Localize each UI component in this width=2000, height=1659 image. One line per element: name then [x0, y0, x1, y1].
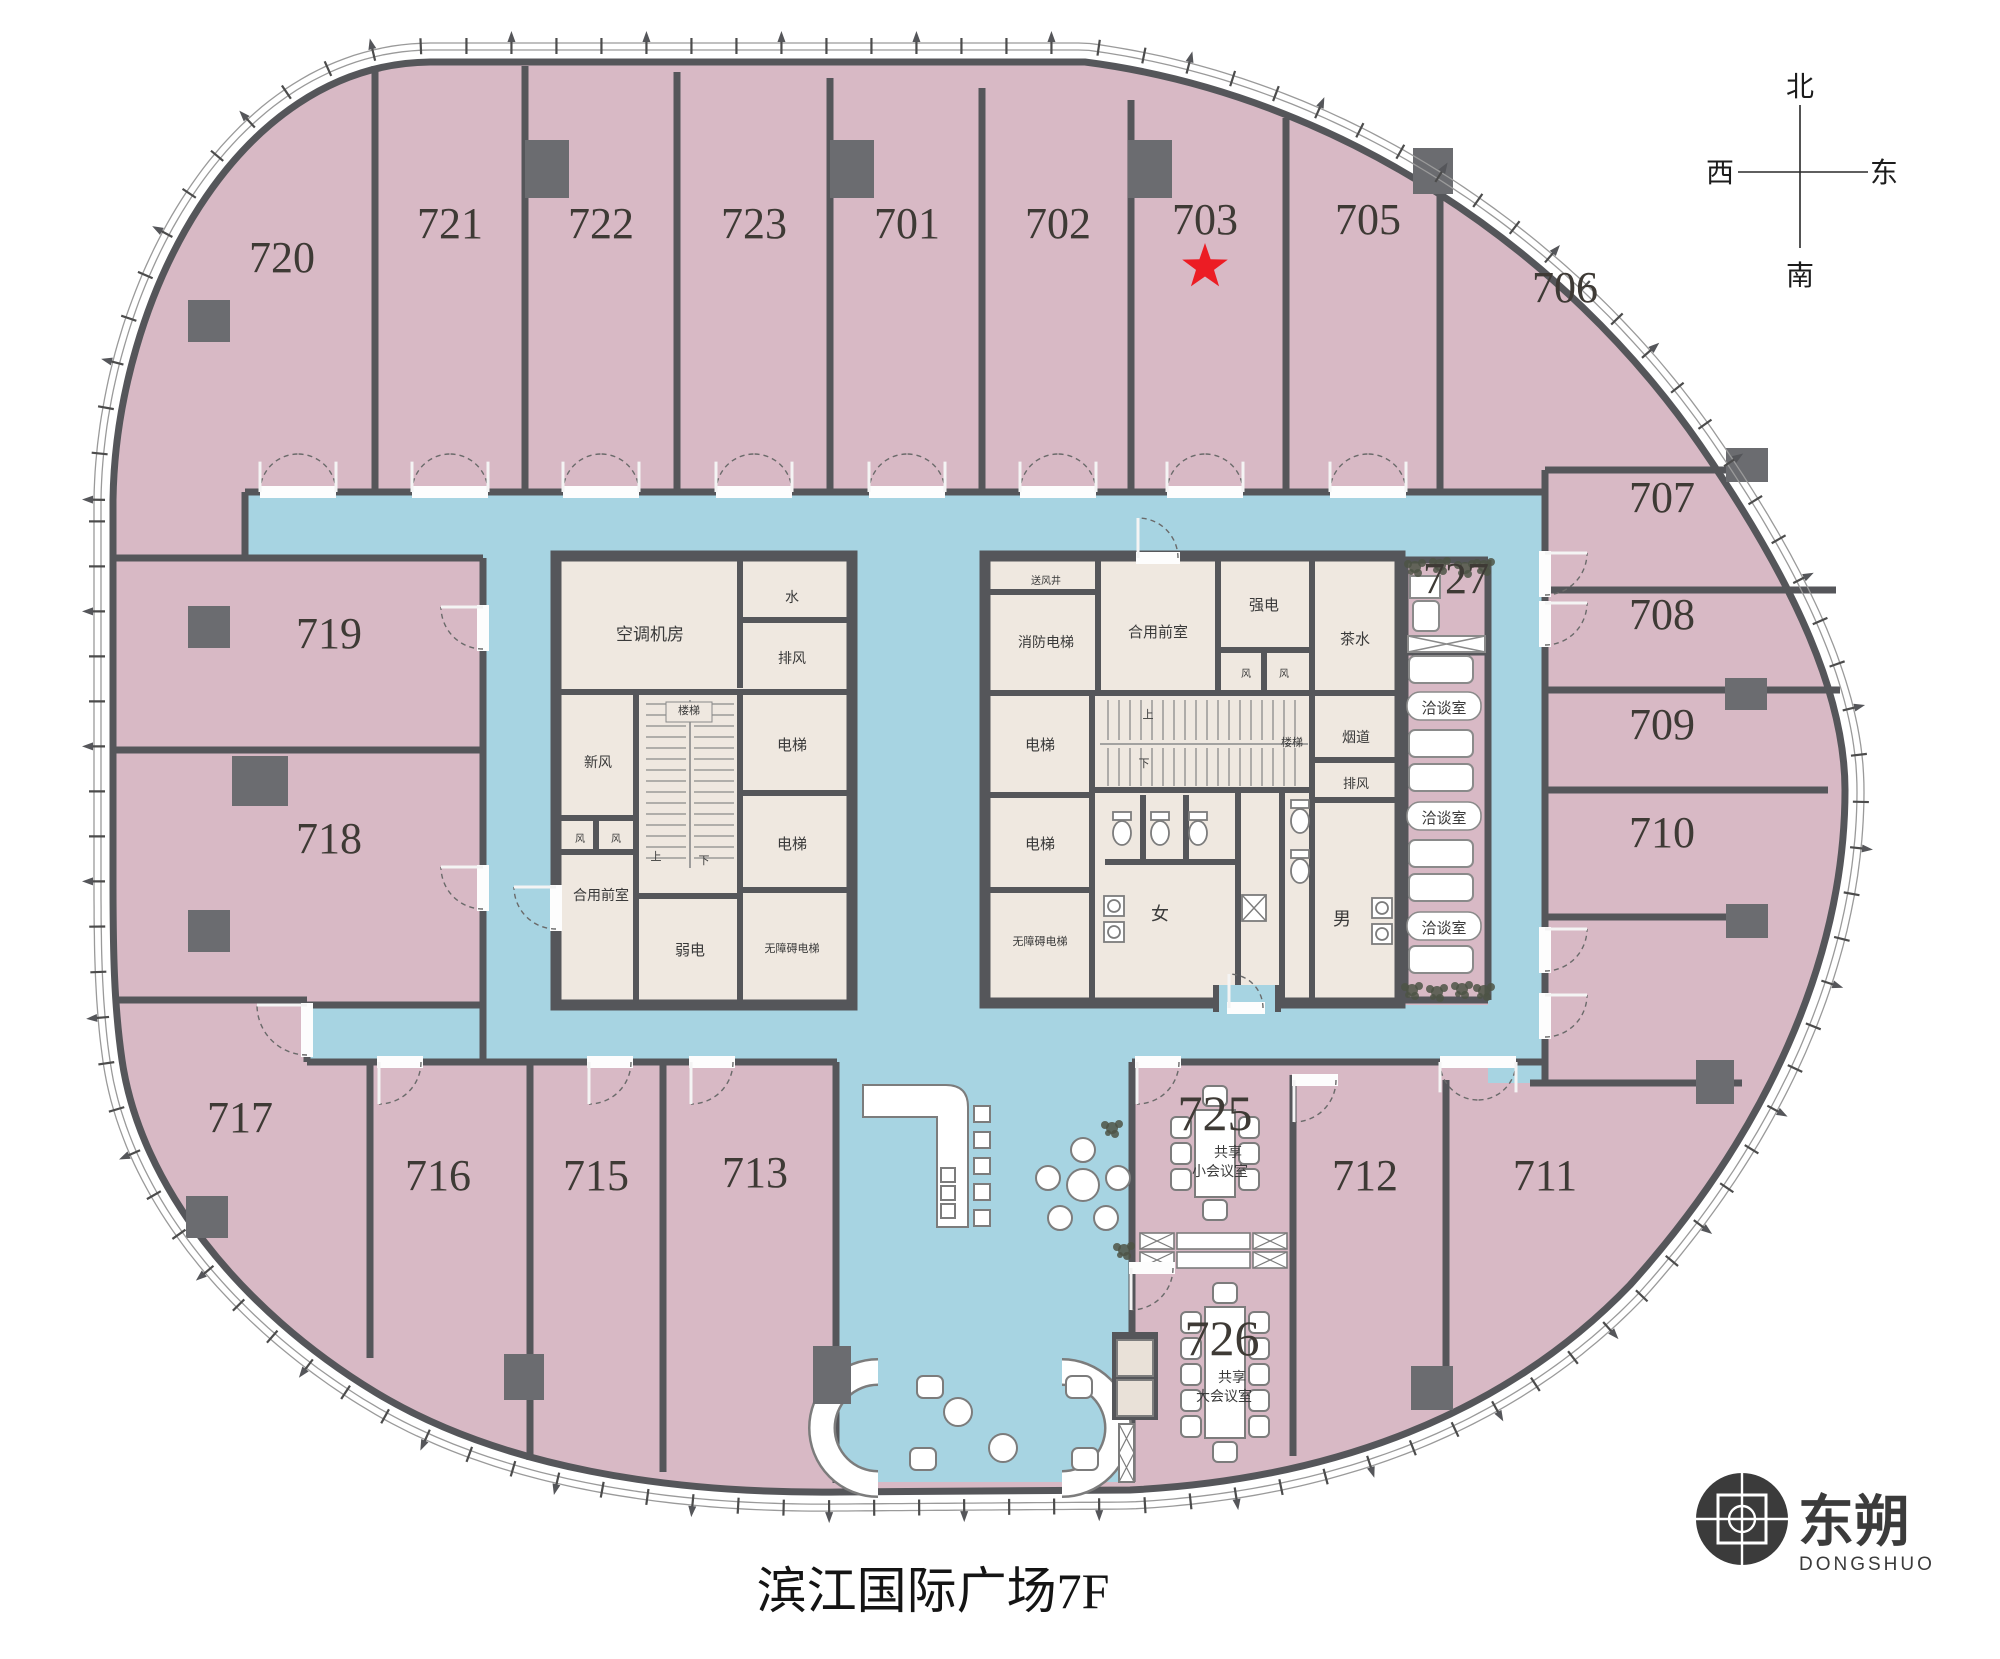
- core-label-新风: 新风: [584, 755, 612, 771]
- facade-mullion: [507, 31, 515, 42]
- core-label-烟道: 烟道: [1342, 730, 1370, 746]
- sink-bowl: [1108, 900, 1120, 912]
- plant: [1473, 984, 1481, 992]
- door-gap: [1539, 551, 1551, 597]
- facade-tick: [90, 972, 106, 973]
- structural-column: [232, 756, 288, 806]
- facade-mullion: [912, 31, 920, 42]
- facade-tick: [1145, 1497, 1146, 1513]
- core-label-下: 下: [699, 854, 710, 867]
- room-label-726: 726: [1185, 1310, 1260, 1366]
- column-hatched: [1119, 1424, 1134, 1482]
- bookshelf: [1177, 1233, 1250, 1249]
- core-label-强电: 强电: [1249, 596, 1279, 614]
- plant: [1117, 1252, 1123, 1258]
- booth-sofa: [1409, 730, 1473, 757]
- door-gap: [377, 1056, 423, 1068]
- facade-tick: [109, 1107, 124, 1112]
- room-label-723: 723: [721, 199, 787, 248]
- facade-mullion: [368, 38, 376, 50]
- plant: [1113, 1243, 1121, 1251]
- meeting-chair: [1171, 1169, 1191, 1190]
- corridor-bottom-band: [307, 1005, 1545, 1062]
- plant: [1426, 985, 1434, 993]
- meeting-chair: [1181, 1416, 1201, 1437]
- structural-column: [813, 1346, 851, 1404]
- door-gap: [260, 486, 336, 498]
- plant: [1414, 569, 1422, 577]
- core-label-排风: 排风: [1343, 777, 1369, 792]
- facade-mullion: [1862, 844, 1873, 852]
- plant: [1408, 569, 1414, 575]
- room-label-716: 716: [405, 1151, 471, 1200]
- toilet: [1189, 821, 1207, 845]
- plant: [1430, 994, 1436, 1000]
- room-label-727: 727: [1423, 554, 1489, 603]
- facade-mullion: [82, 607, 93, 615]
- room-label-713: 713: [722, 1148, 788, 1197]
- facade-tick: [1279, 1479, 1282, 1495]
- facade-tick: [646, 1489, 648, 1505]
- structural-column: [188, 910, 230, 952]
- room-label-711: 711: [1513, 1151, 1577, 1200]
- door-gap: [477, 865, 489, 911]
- lounge-table: [944, 1398, 972, 1426]
- facade-mullion: [553, 1483, 561, 1495]
- lobby-area: [837, 1062, 1132, 1482]
- structural-column: [1411, 1366, 1453, 1410]
- toilet-tank: [1189, 812, 1207, 820]
- compass-east: 东: [1870, 157, 1898, 189]
- core-label-上: 上: [651, 850, 662, 863]
- corridor-top-band: [245, 492, 1545, 558]
- core-label-电梯: 电梯: [1025, 835, 1055, 853]
- facade-tick: [1142, 48, 1145, 64]
- room-label-708: 708: [1629, 590, 1695, 639]
- facade-tick: [98, 406, 114, 409]
- facade-mullion: [82, 742, 93, 750]
- facade-tick: [601, 1482, 604, 1498]
- door-gap: [1020, 486, 1096, 498]
- corridor-center-branch: [852, 558, 985, 1005]
- booth-label: 洽谈室: [1421, 809, 1466, 827]
- reception-stool: [974, 1132, 990, 1148]
- plant: [1465, 981, 1473, 989]
- door-gap: [563, 486, 639, 498]
- toilet: [1291, 809, 1309, 833]
- plant: [1101, 1121, 1109, 1129]
- cafe-chair: [1048, 1206, 1072, 1230]
- plant: [1111, 1130, 1119, 1138]
- door-gap: [1330, 486, 1406, 498]
- booth-label: 洽谈室: [1421, 919, 1466, 937]
- door-gap: [1167, 486, 1243, 498]
- lounge-chair: [917, 1376, 943, 1398]
- core-label-电梯: 电梯: [777, 835, 807, 853]
- corridor-right-branch: [1488, 492, 1545, 1083]
- core-label-弱电: 弱电: [675, 941, 705, 959]
- facade-tick: [98, 1062, 114, 1064]
- plant: [1455, 991, 1461, 997]
- core-label-男: 男: [1333, 909, 1351, 930]
- logo-cn-text: 东朔: [1798, 1490, 1910, 1555]
- core-label-风: 风: [1279, 668, 1289, 680]
- plant: [1115, 1120, 1123, 1128]
- logo-crosshair: [1684, 1461, 1800, 1577]
- door-gap: [1227, 1002, 1265, 1014]
- meeting-chair: [1249, 1364, 1269, 1385]
- door-gap: [1135, 1056, 1181, 1068]
- room-label-707: 707: [1629, 473, 1695, 522]
- core-label-水: 水: [785, 590, 799, 606]
- facade-tick: [1097, 40, 1099, 56]
- meeting-chair: [1213, 1283, 1237, 1303]
- core-label-风: 风: [1241, 668, 1251, 680]
- door-gap: [301, 1003, 313, 1057]
- facade-mullion: [101, 358, 113, 366]
- compass: 北 南 西 东: [1706, 72, 1898, 292]
- structural-column: [504, 1354, 544, 1400]
- door-gap: [412, 486, 488, 498]
- structural-column: [1128, 140, 1172, 198]
- room-label-719: 719: [296, 609, 362, 658]
- compass-west: 西: [1706, 158, 1734, 189]
- facade-mullion: [86, 1014, 97, 1022]
- plant: [1105, 1130, 1111, 1136]
- structural-column: [1413, 148, 1453, 194]
- core-label-下: 下: [1139, 757, 1150, 770]
- structural-column: [186, 1196, 228, 1238]
- room-label-712: 712: [1332, 1151, 1398, 1200]
- facade-tick: [511, 1461, 516, 1476]
- reception-equipment: [941, 1186, 955, 1200]
- dongshuo-logo: 东朔 DONGSHUO: [1684, 1461, 1935, 1577]
- structural-column: [188, 606, 230, 648]
- cafe-table: [1067, 1169, 1099, 1201]
- label-726-share: 共享: [1218, 1369, 1246, 1386]
- compass-cross: [1738, 105, 1868, 248]
- door-gap: [716, 486, 792, 498]
- floor-plan-svg: 7207217227237017027037057067077087097107…: [0, 0, 2000, 1659]
- booth-sofa: [1409, 656, 1473, 683]
- structural-column: [830, 140, 874, 198]
- reception-stool: [974, 1158, 990, 1174]
- room-label-715: 715: [563, 1151, 629, 1200]
- door-gap: [1539, 927, 1551, 973]
- facade-mullion: [688, 1506, 696, 1517]
- room-label-720: 720: [249, 233, 315, 282]
- toilet: [1113, 821, 1131, 845]
- structural-column: [525, 140, 569, 198]
- door-gap: [1440, 1056, 1516, 1068]
- reception-stool: [974, 1184, 990, 1200]
- core-label-无障碍电梯: 无障碍电梯: [1013, 934, 1068, 948]
- room-label-721: 721: [417, 199, 483, 248]
- door-gap: [1539, 993, 1551, 1039]
- core-label-风: 风: [575, 833, 585, 845]
- room-label-705: 705: [1335, 195, 1401, 244]
- compass-north: 北: [1786, 72, 1814, 103]
- core-label-空调机房: 空调机房: [616, 625, 684, 645]
- label-725-share: 共享: [1214, 1144, 1242, 1161]
- room-label-710: 710: [1629, 808, 1695, 857]
- room-label-706: 706: [1532, 263, 1598, 312]
- label-725-type: 小会议室: [1192, 1163, 1248, 1180]
- facade-mullion: [1832, 981, 1844, 989]
- door-gap: [1136, 552, 1180, 564]
- core-label-送风井: 送风井: [1031, 574, 1061, 587]
- door-gap: [477, 605, 489, 651]
- facade-mullion: [82, 877, 93, 885]
- door-gap: [1129, 1262, 1175, 1274]
- plant: [1477, 993, 1483, 999]
- core-label-茶水: 茶水: [1340, 630, 1370, 648]
- meeting-chair: [1203, 1200, 1227, 1220]
- plant: [1451, 982, 1459, 990]
- plant: [1415, 982, 1423, 990]
- door-gap: [587, 1056, 633, 1068]
- facade-mullion: [777, 31, 785, 42]
- plant: [1487, 983, 1495, 991]
- structural-column: [1726, 448, 1768, 482]
- core-label-女: 女: [1151, 904, 1169, 925]
- room-label-717: 717: [207, 1093, 273, 1142]
- door-gap: [689, 1056, 735, 1068]
- toilet: [1151, 821, 1169, 845]
- door-gap: [869, 486, 945, 498]
- plant: [1411, 992, 1419, 1000]
- facade-tick: [1851, 754, 1867, 756]
- facade-tick: [1844, 892, 1860, 895]
- facade-mullion: [642, 31, 650, 42]
- plant: [1405, 992, 1411, 998]
- door-gap: [1539, 601, 1551, 647]
- toilet-tank: [1291, 800, 1309, 808]
- room-label-709: 709: [1629, 700, 1695, 749]
- core-label-电梯: 电梯: [777, 736, 807, 754]
- meeting-chair: [1171, 1143, 1191, 1164]
- facade-tick: [1190, 1493, 1192, 1509]
- structural-column: [1725, 678, 1767, 710]
- structural-column: [188, 300, 230, 342]
- booth-sofa: [1409, 840, 1473, 867]
- sink-bowl: [1108, 926, 1120, 938]
- plant: [1483, 993, 1491, 1001]
- plan-title: 滨江国际广场7F: [757, 1563, 1110, 1619]
- facade-mullion: [1186, 51, 1194, 63]
- plant: [1404, 560, 1412, 568]
- lounge-chair: [1072, 1448, 1098, 1470]
- cafe-chair: [1036, 1166, 1060, 1190]
- facade-tick: [738, 1498, 739, 1514]
- booth-sofa: [1409, 764, 1473, 791]
- facade-mullion: [1233, 1499, 1241, 1510]
- plant: [1461, 991, 1469, 999]
- core-label-上: 上: [1143, 708, 1154, 721]
- core-label-消防电梯: 消防电梯: [1018, 635, 1074, 651]
- facade-mullion: [1853, 704, 1865, 712]
- room-label-718: 718: [296, 814, 362, 863]
- label-726-type: 大会议室: [1196, 1388, 1252, 1405]
- plant: [1123, 1252, 1131, 1260]
- plant: [1127, 1242, 1135, 1250]
- cabinet-shelf: [1117, 1380, 1153, 1416]
- core-label-风: 风: [611, 833, 621, 845]
- meeting-chair: [1249, 1416, 1269, 1437]
- reception-equipment: [941, 1204, 955, 1218]
- meeting-chair: [1239, 1143, 1259, 1164]
- meeting-chair: [1181, 1364, 1201, 1385]
- facade-mullion: [1095, 1510, 1103, 1521]
- toilet-tank: [1151, 812, 1169, 820]
- meeting-chair: [1249, 1390, 1269, 1411]
- room-label-703: 703: [1172, 195, 1238, 244]
- door-gap: [550, 885, 562, 931]
- core-label-楼梯: 楼梯: [678, 703, 700, 717]
- floor-plan-page: 7207217227237017027037057067077087097107…: [0, 0, 2000, 1659]
- toilet: [1291, 859, 1309, 883]
- facade-tick: [92, 453, 108, 455]
- booth-sofa: [1409, 946, 1473, 973]
- structural-column: [1696, 1060, 1734, 1104]
- cabinet-shelf: [1117, 1340, 1153, 1376]
- core-label-合用前室: 合用前室: [573, 887, 629, 904]
- facade-mullion: [82, 496, 93, 504]
- bookshelf: [1177, 1252, 1250, 1268]
- reception-stool: [974, 1210, 990, 1226]
- meeting-chair: [1213, 1442, 1237, 1462]
- core-label-电梯: 电梯: [1025, 736, 1055, 754]
- core-label-排风: 排风: [778, 651, 806, 667]
- corridor-left-branch: [483, 558, 556, 1062]
- plant: [1401, 983, 1409, 991]
- lounge-chair: [1066, 1376, 1092, 1398]
- reception-equipment: [941, 1168, 955, 1182]
- compass-south: 南: [1786, 260, 1814, 292]
- booth-sofa: [1409, 874, 1473, 901]
- logo-en-text: DONGSHUO: [1799, 1554, 1935, 1575]
- sink-bowl: [1376, 902, 1388, 914]
- plant: [1436, 994, 1444, 1002]
- room-label-701: 701: [874, 199, 940, 248]
- structural-column: [1726, 904, 1768, 938]
- room-label-725: 725: [1178, 1085, 1253, 1141]
- door-gap: [1292, 1074, 1338, 1086]
- facade-mullion: [1047, 31, 1055, 42]
- core-label-合用前室: 合用前室: [1128, 623, 1188, 641]
- facade-mullion: [960, 1511, 968, 1522]
- facade-tick: [1834, 937, 1850, 941]
- sink-bowl: [1376, 928, 1388, 940]
- plant: [1440, 984, 1448, 992]
- facade-mullion: [825, 1512, 833, 1523]
- cafe-chair: [1071, 1138, 1095, 1162]
- booth-label: 洽谈室: [1421, 699, 1466, 717]
- room-label-702: 702: [1025, 199, 1091, 248]
- facade-tick: [420, 38, 421, 54]
- cafe-chair: [1106, 1166, 1130, 1190]
- core-label-无障碍电梯: 无障碍电梯: [765, 941, 820, 955]
- lounge-chair: [910, 1448, 936, 1470]
- cafe-chair: [1094, 1206, 1118, 1230]
- toilet-tank: [1291, 850, 1309, 858]
- core-label-楼梯: 楼梯: [1281, 735, 1303, 749]
- toilet-tank: [1113, 812, 1131, 820]
- lounge-table: [989, 1434, 1017, 1462]
- room-label-722: 722: [568, 199, 634, 248]
- chair-727: [1413, 601, 1439, 631]
- facade-tick: [1324, 1469, 1328, 1484]
- reception-stool: [974, 1106, 990, 1122]
